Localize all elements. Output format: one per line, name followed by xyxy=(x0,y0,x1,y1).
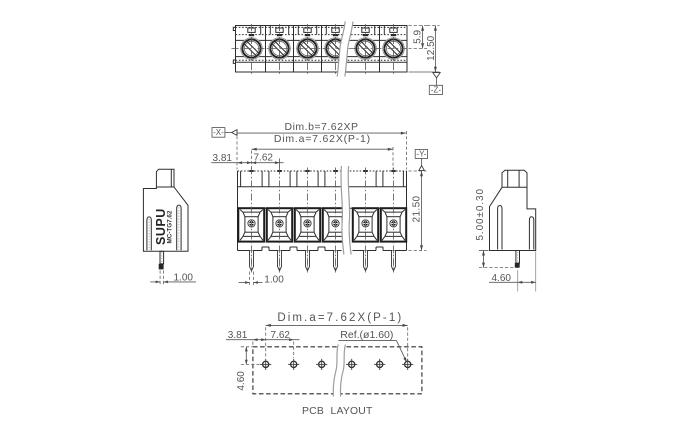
svg-text:MC-TG7.62: MC-TG7.62 xyxy=(166,210,173,243)
svg-text:4.60: 4.60 xyxy=(236,371,247,391)
svg-text:4.60: 4.60 xyxy=(492,273,512,284)
svg-text:Dim.a=7.62X(P-1): Dim.a=7.62X(P-1) xyxy=(274,133,371,145)
svg-text:21.50: 21.50 xyxy=(412,195,423,222)
svg-text:7.62: 7.62 xyxy=(254,153,274,164)
svg-text:Dim.a=7.62X(P-1): Dim.a=7.62X(P-1) xyxy=(277,312,403,324)
svg-text:PCB LAYOUT: PCB LAYOUT xyxy=(302,406,373,417)
svg-text:12.50: 12.50 xyxy=(426,35,437,60)
svg-text:5.9: 5.9 xyxy=(413,30,424,44)
svg-text:1.00: 1.00 xyxy=(174,273,194,284)
svg-text:3.81: 3.81 xyxy=(228,330,248,341)
svg-text:1.00: 1.00 xyxy=(264,274,284,285)
svg-text:3.81: 3.81 xyxy=(213,153,233,164)
svg-text:5.00±0.30: 5.00±0.30 xyxy=(475,188,486,241)
svg-text:-Z-: -Z- xyxy=(431,86,442,95)
svg-text:7.62: 7.62 xyxy=(271,330,291,341)
svg-text:Ref.(ø1.60): Ref.(ø1.60) xyxy=(340,329,393,341)
svg-text:Dim.b=7.62XP: Dim.b=7.62XP xyxy=(285,121,359,133)
svg-text:-X-: -X- xyxy=(213,128,224,137)
svg-text:-Y-: -Y- xyxy=(416,150,426,159)
